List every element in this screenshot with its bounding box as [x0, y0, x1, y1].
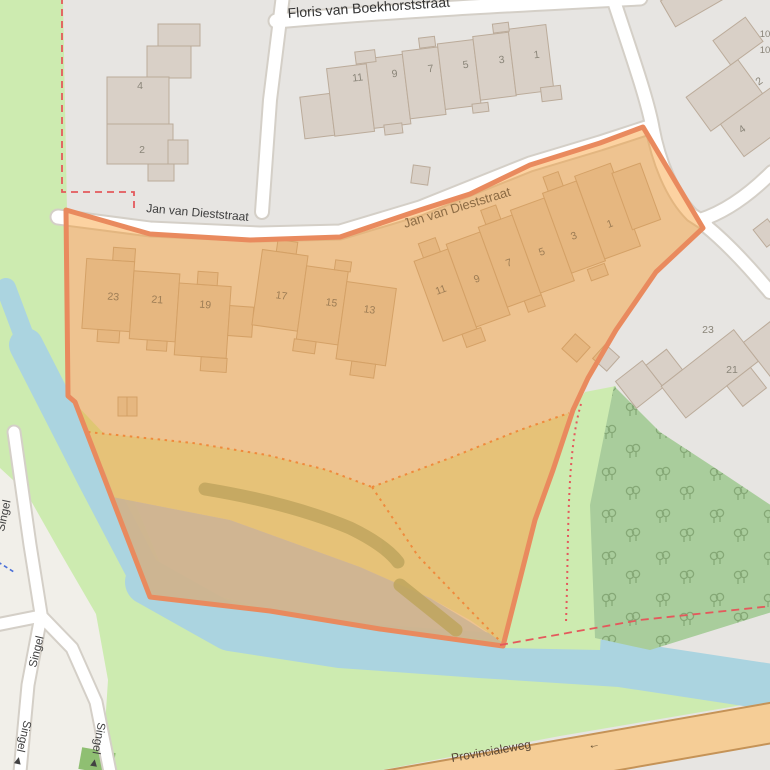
house-number: 2 [139, 144, 145, 156]
building-small [411, 165, 430, 185]
house-number: 17 [275, 289, 288, 303]
house-number: 11 [351, 71, 363, 84]
oneway-arrow: ← [587, 736, 601, 752]
map-svg[interactable]: Floris van Boekhorststraat Jan van Diest… [0, 0, 770, 770]
house-number: 10 [760, 45, 770, 56]
house-number: 19 [199, 299, 212, 312]
house-number: 21 [726, 364, 738, 376]
house-number: 13 [363, 303, 376, 317]
house-number: 10 [760, 29, 770, 40]
house-number: 23 [702, 324, 714, 336]
house-number: 15 [325, 296, 338, 310]
house-number: 4 [137, 80, 143, 92]
house-number: 23 [107, 291, 120, 304]
map-canvas[interactable]: Floris van Boekhorststraat Jan van Diest… [0, 0, 770, 770]
house-number: 21 [151, 294, 164, 307]
